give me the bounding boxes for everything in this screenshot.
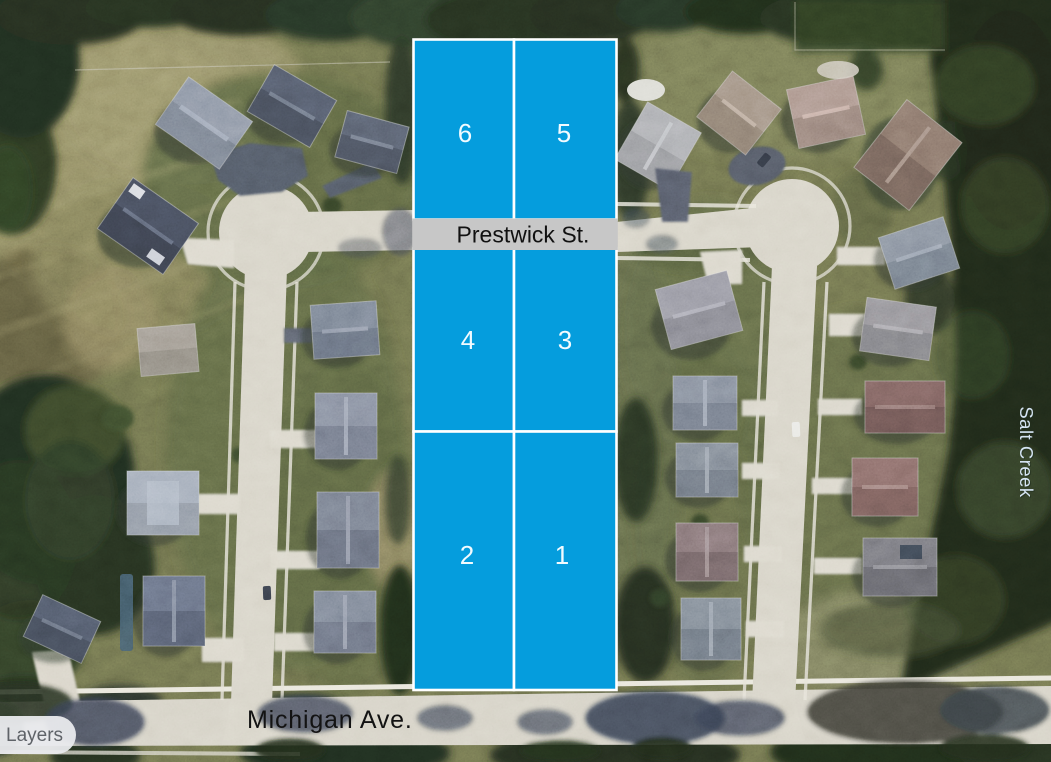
svg-text:3: 3 — [558, 325, 572, 355]
svg-text:Michigan Ave.: Michigan Ave. — [247, 706, 413, 734]
svg-text:Salt Creek: Salt Creek — [1016, 406, 1037, 498]
svg-text:2: 2 — [460, 540, 474, 570]
svg-text:5: 5 — [557, 118, 571, 148]
svg-text:6: 6 — [458, 118, 472, 148]
svg-text:Prestwick St.: Prestwick St. — [457, 222, 590, 248]
svg-text:Layers: Layers — [6, 725, 63, 746]
svg-text:4: 4 — [461, 325, 475, 355]
svg-text:1: 1 — [555, 540, 569, 570]
